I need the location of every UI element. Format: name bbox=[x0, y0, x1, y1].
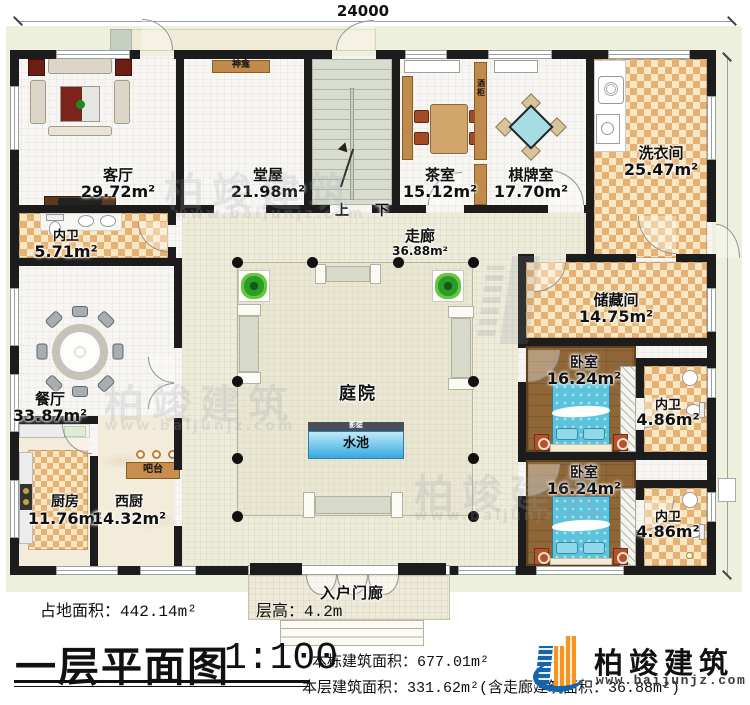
wall bbox=[636, 366, 644, 398]
column-dot bbox=[232, 511, 243, 522]
stove-burner bbox=[23, 499, 29, 505]
column-dot bbox=[307, 257, 318, 268]
laundry-sink-bowl bbox=[601, 122, 614, 135]
column-dot bbox=[393, 257, 404, 268]
wall bbox=[174, 50, 332, 59]
wall bbox=[636, 358, 716, 366]
room-area: 25.47m² bbox=[624, 162, 698, 179]
wall bbox=[10, 566, 248, 575]
tea-chair bbox=[414, 110, 429, 123]
column-dot bbox=[232, 257, 243, 268]
sofa bbox=[30, 80, 46, 124]
dining-chair bbox=[113, 344, 124, 360]
toilet-tank bbox=[46, 214, 64, 221]
toilet-tank bbox=[699, 524, 705, 540]
plan-title: 一层平面图 bbox=[15, 633, 230, 693]
wall bbox=[566, 254, 636, 262]
window bbox=[707, 492, 716, 522]
logo-swoosh bbox=[533, 662, 583, 692]
sofa bbox=[48, 58, 112, 74]
tea-table bbox=[430, 104, 468, 154]
room-area: 14.75m² bbox=[579, 309, 653, 326]
pillow bbox=[556, 542, 578, 554]
nightstand bbox=[613, 434, 628, 451]
pool-label: 水池 bbox=[343, 437, 369, 451]
room-area: 4.86m² bbox=[636, 524, 699, 541]
window bbox=[458, 566, 516, 575]
side-table bbox=[28, 59, 45, 76]
room-area: 15.12m² bbox=[403, 184, 477, 201]
bar-stool bbox=[152, 450, 161, 459]
window bbox=[707, 368, 716, 398]
room-area: 16.24m² bbox=[547, 371, 621, 388]
nightstand bbox=[613, 548, 628, 565]
pillow bbox=[583, 428, 605, 440]
side-table bbox=[115, 59, 132, 76]
nightstand bbox=[534, 434, 549, 451]
bar-stool bbox=[136, 450, 145, 459]
window bbox=[10, 86, 19, 150]
sink bbox=[78, 215, 94, 227]
sink bbox=[682, 492, 698, 508]
floor-plan-canvas: 24000 18000 bbox=[0, 0, 750, 705]
plant-icon bbox=[238, 270, 270, 302]
pillow bbox=[556, 428, 578, 440]
walkway bbox=[451, 318, 471, 378]
brand-url: www.baijunjz.com bbox=[596, 673, 746, 688]
plant-icon bbox=[432, 270, 464, 302]
watermark-url: www.baijunjz.com bbox=[390, 508, 630, 524]
window bbox=[608, 50, 690, 59]
wall bbox=[586, 59, 594, 262]
room-area: 4.86m² bbox=[636, 412, 699, 429]
window bbox=[56, 50, 130, 59]
bed-frame bbox=[550, 444, 612, 452]
toilet-tank bbox=[699, 402, 705, 418]
wall bbox=[518, 338, 716, 346]
window bbox=[488, 50, 552, 59]
window bbox=[707, 96, 716, 160]
door-mat bbox=[110, 29, 132, 51]
tea-counter bbox=[404, 60, 460, 73]
room-label: 走廊 bbox=[405, 229, 435, 245]
shrine-label: 神龛 bbox=[232, 61, 250, 70]
room-area: 14.32m² bbox=[92, 511, 166, 528]
wall bbox=[174, 266, 182, 348]
column-dot bbox=[468, 376, 479, 387]
floor-drain bbox=[686, 552, 693, 559]
sofa bbox=[114, 80, 130, 124]
walkway-cap bbox=[315, 264, 326, 284]
dining-chair bbox=[72, 306, 88, 317]
washing-machine-drum bbox=[604, 82, 618, 96]
wall bbox=[584, 205, 594, 213]
tea-chair bbox=[414, 132, 429, 145]
window bbox=[10, 288, 19, 346]
room-area: 36.88m² bbox=[392, 245, 448, 258]
wall bbox=[174, 526, 182, 566]
door-arc bbox=[336, 20, 374, 50]
room-area: 17.70m² bbox=[494, 184, 568, 201]
title-underline bbox=[14, 680, 310, 683]
rug-plant-icon bbox=[76, 100, 85, 109]
window bbox=[10, 480, 19, 538]
room-area: 5.71m² bbox=[34, 244, 97, 261]
bar-label: 吧台 bbox=[143, 465, 163, 476]
floor-height-text: 层高：4.2m bbox=[256, 597, 342, 621]
walkway bbox=[239, 316, 259, 372]
tea-cabinet bbox=[402, 76, 413, 160]
wall bbox=[168, 247, 176, 258]
stove-burner bbox=[23, 488, 29, 494]
wine-cabinet-label: 酒柜 bbox=[477, 80, 486, 98]
building-area-text: 本栋建筑面积：677.01m² bbox=[312, 650, 489, 671]
sofa-bench bbox=[48, 126, 112, 136]
window bbox=[707, 288, 716, 332]
walkway-cap bbox=[370, 264, 381, 284]
door-arc bbox=[142, 19, 173, 50]
west-kitchen-floor bbox=[98, 416, 174, 566]
dining-chair bbox=[37, 344, 48, 360]
nightstand bbox=[534, 548, 549, 565]
top-dimension-label: 24000 bbox=[337, 4, 389, 20]
wall bbox=[636, 430, 644, 452]
walkway-cap bbox=[237, 304, 261, 316]
walkway bbox=[326, 266, 370, 282]
column-dot bbox=[468, 257, 479, 268]
pillow bbox=[583, 542, 605, 554]
watermark-url: www.baijunjz.com bbox=[150, 206, 390, 222]
wall bbox=[518, 452, 716, 460]
wall bbox=[676, 254, 716, 262]
window bbox=[536, 566, 624, 575]
wine-cabinet bbox=[474, 62, 487, 160]
window bbox=[140, 566, 196, 575]
room-label: 厨房 bbox=[51, 495, 79, 510]
wall bbox=[518, 382, 526, 462]
walkway-cap bbox=[303, 492, 315, 518]
sink bbox=[682, 370, 698, 386]
watermark-url: www.baijunjz.com bbox=[80, 418, 320, 434]
ac-unit bbox=[718, 478, 736, 502]
chess-counter bbox=[494, 60, 538, 73]
top-dimension-line bbox=[17, 21, 733, 22]
room-label: 西厨 bbox=[115, 495, 143, 510]
column-dot bbox=[232, 453, 243, 464]
window bbox=[56, 566, 118, 575]
wall bbox=[464, 205, 548, 213]
bed-frame bbox=[550, 558, 612, 565]
site-area-text: 占地面积：442.14m² bbox=[40, 597, 197, 621]
brand-logo-icon bbox=[535, 634, 591, 696]
title-underline bbox=[14, 686, 310, 687]
dining-table-center bbox=[74, 346, 86, 358]
window bbox=[405, 50, 447, 59]
walkway-cap bbox=[448, 306, 474, 318]
